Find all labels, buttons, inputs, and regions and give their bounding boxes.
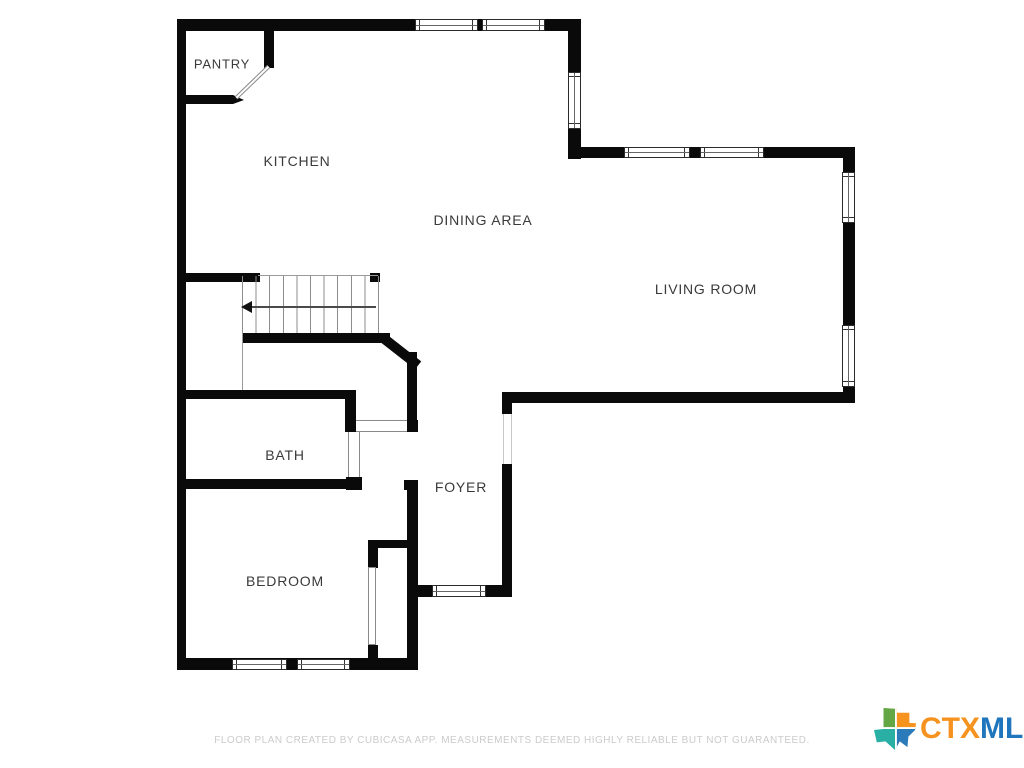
window-bedroom-1 <box>232 659 287 670</box>
ctxmls-logo: CTXMLS <box>872 707 1024 751</box>
room-label-dining: DINING AREA <box>433 212 532 228</box>
window-bedroom-2 <box>297 659 350 670</box>
window-kitchen-top-1 <box>415 19 478 31</box>
wall-pantry-right <box>264 19 274 68</box>
room-label-foyer: FOYER <box>435 479 487 495</box>
stair-direction-arrow <box>241 301 252 313</box>
logo-text-mls: MLS <box>980 707 1024 751</box>
wall-stair-bottom <box>242 333 390 343</box>
bath-door <box>348 432 360 477</box>
room-label-living: LIVING ROOM <box>655 281 757 297</box>
front-door-opening <box>503 414 512 464</box>
floor-plan: PANTRY KITCHEN DINING AREA LIVING ROOM B… <box>0 0 1024 768</box>
room-label-pantry: PANTRY <box>194 57 250 72</box>
window-living-top-2 <box>700 147 764 158</box>
wall-bath-bottom <box>177 479 354 489</box>
wall-closet-left-lower <box>368 645 378 670</box>
room-label-bath: BATH <box>265 447 305 463</box>
wall-foyer-left-cap <box>404 480 418 490</box>
wall-foyer-right-lower <box>502 464 512 597</box>
room-label-kitchen: KITCHEN <box>263 153 330 169</box>
wall-bath-right <box>345 390 356 432</box>
wall-bath-bottom-cap <box>346 477 362 490</box>
window-foyer-bottom <box>432 585 486 597</box>
stair-direction-line <box>250 306 376 308</box>
window-living-top-1 <box>624 147 690 158</box>
wall-foyer-right-upper <box>502 403 512 414</box>
room-label-bedroom: BEDROOM <box>246 573 324 589</box>
wall-pantry-bottom <box>177 95 233 104</box>
wall-bath-top <box>177 390 354 399</box>
wall-living-bottom <box>502 392 855 403</box>
staircase <box>242 276 379 333</box>
wall-foyer-bottom-left <box>417 585 433 597</box>
window-kitchen-right <box>568 72 581 129</box>
wall-foyer-left <box>407 480 418 670</box>
wall-closet-left-upper <box>368 540 378 568</box>
wall-left <box>177 19 186 670</box>
footer-disclaimer: FLOOR PLAN CREATED BY CUBICASA APP. MEAS… <box>0 735 1024 746</box>
texas-icon <box>872 707 918 751</box>
hall-doorway <box>356 420 407 432</box>
window-kitchen-top-2 <box>482 19 545 31</box>
wall-foyer-bottom-corner <box>486 585 512 597</box>
logo-text-ctx: CTX <box>920 707 980 751</box>
window-living-right-2 <box>842 325 855 387</box>
window-living-right-1 <box>842 172 855 223</box>
closet-door <box>368 567 376 645</box>
